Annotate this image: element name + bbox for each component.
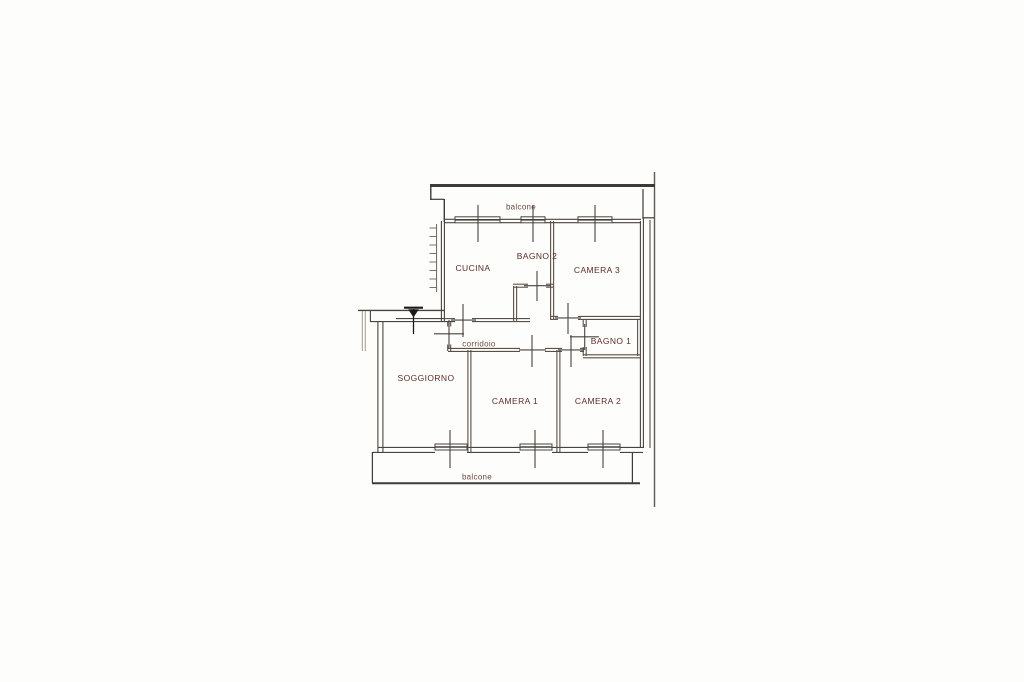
entrance-arrow-icon <box>404 308 423 334</box>
room-label-camera-1: CAMERA 1 <box>492 396 538 406</box>
window-icon <box>588 430 620 468</box>
floor-plan-drawing <box>0 0 1024 682</box>
room-label-bagno-1: BAGNO 1 <box>591 336 632 346</box>
door-opening-icon <box>524 271 551 301</box>
room-label-cucina: CUCINA <box>456 263 491 273</box>
door-opening-icon <box>555 303 581 334</box>
balcony-bottom-outline <box>372 452 640 483</box>
room-label-bagno-2: BAGNO 2 <box>517 251 558 261</box>
door-opening-icon <box>519 335 546 367</box>
window-icon <box>520 430 552 468</box>
door-opening-icon <box>451 304 476 337</box>
label-corridoio: corridoio <box>462 340 495 349</box>
wall-hatch-ticks <box>430 224 437 292</box>
door-opening-icon <box>434 320 464 348</box>
faded-left-wall-stub <box>362 311 365 351</box>
floor-plan-canvas: balcone CUCINA BAGNO 2 CAMERA 3 corridoi… <box>0 0 1024 682</box>
room-label-soggiorno: SOGGIORNO <box>398 373 455 383</box>
window-icon <box>578 205 612 242</box>
label-balcone-top: balcone <box>506 203 536 212</box>
room-label-camera-2: CAMERA 2 <box>575 396 621 406</box>
label-balcone-bottom: balcone <box>462 473 492 482</box>
room-label-camera-3: CAMERA 3 <box>574 265 620 275</box>
window-icon <box>435 430 467 468</box>
window-icon <box>455 205 500 242</box>
